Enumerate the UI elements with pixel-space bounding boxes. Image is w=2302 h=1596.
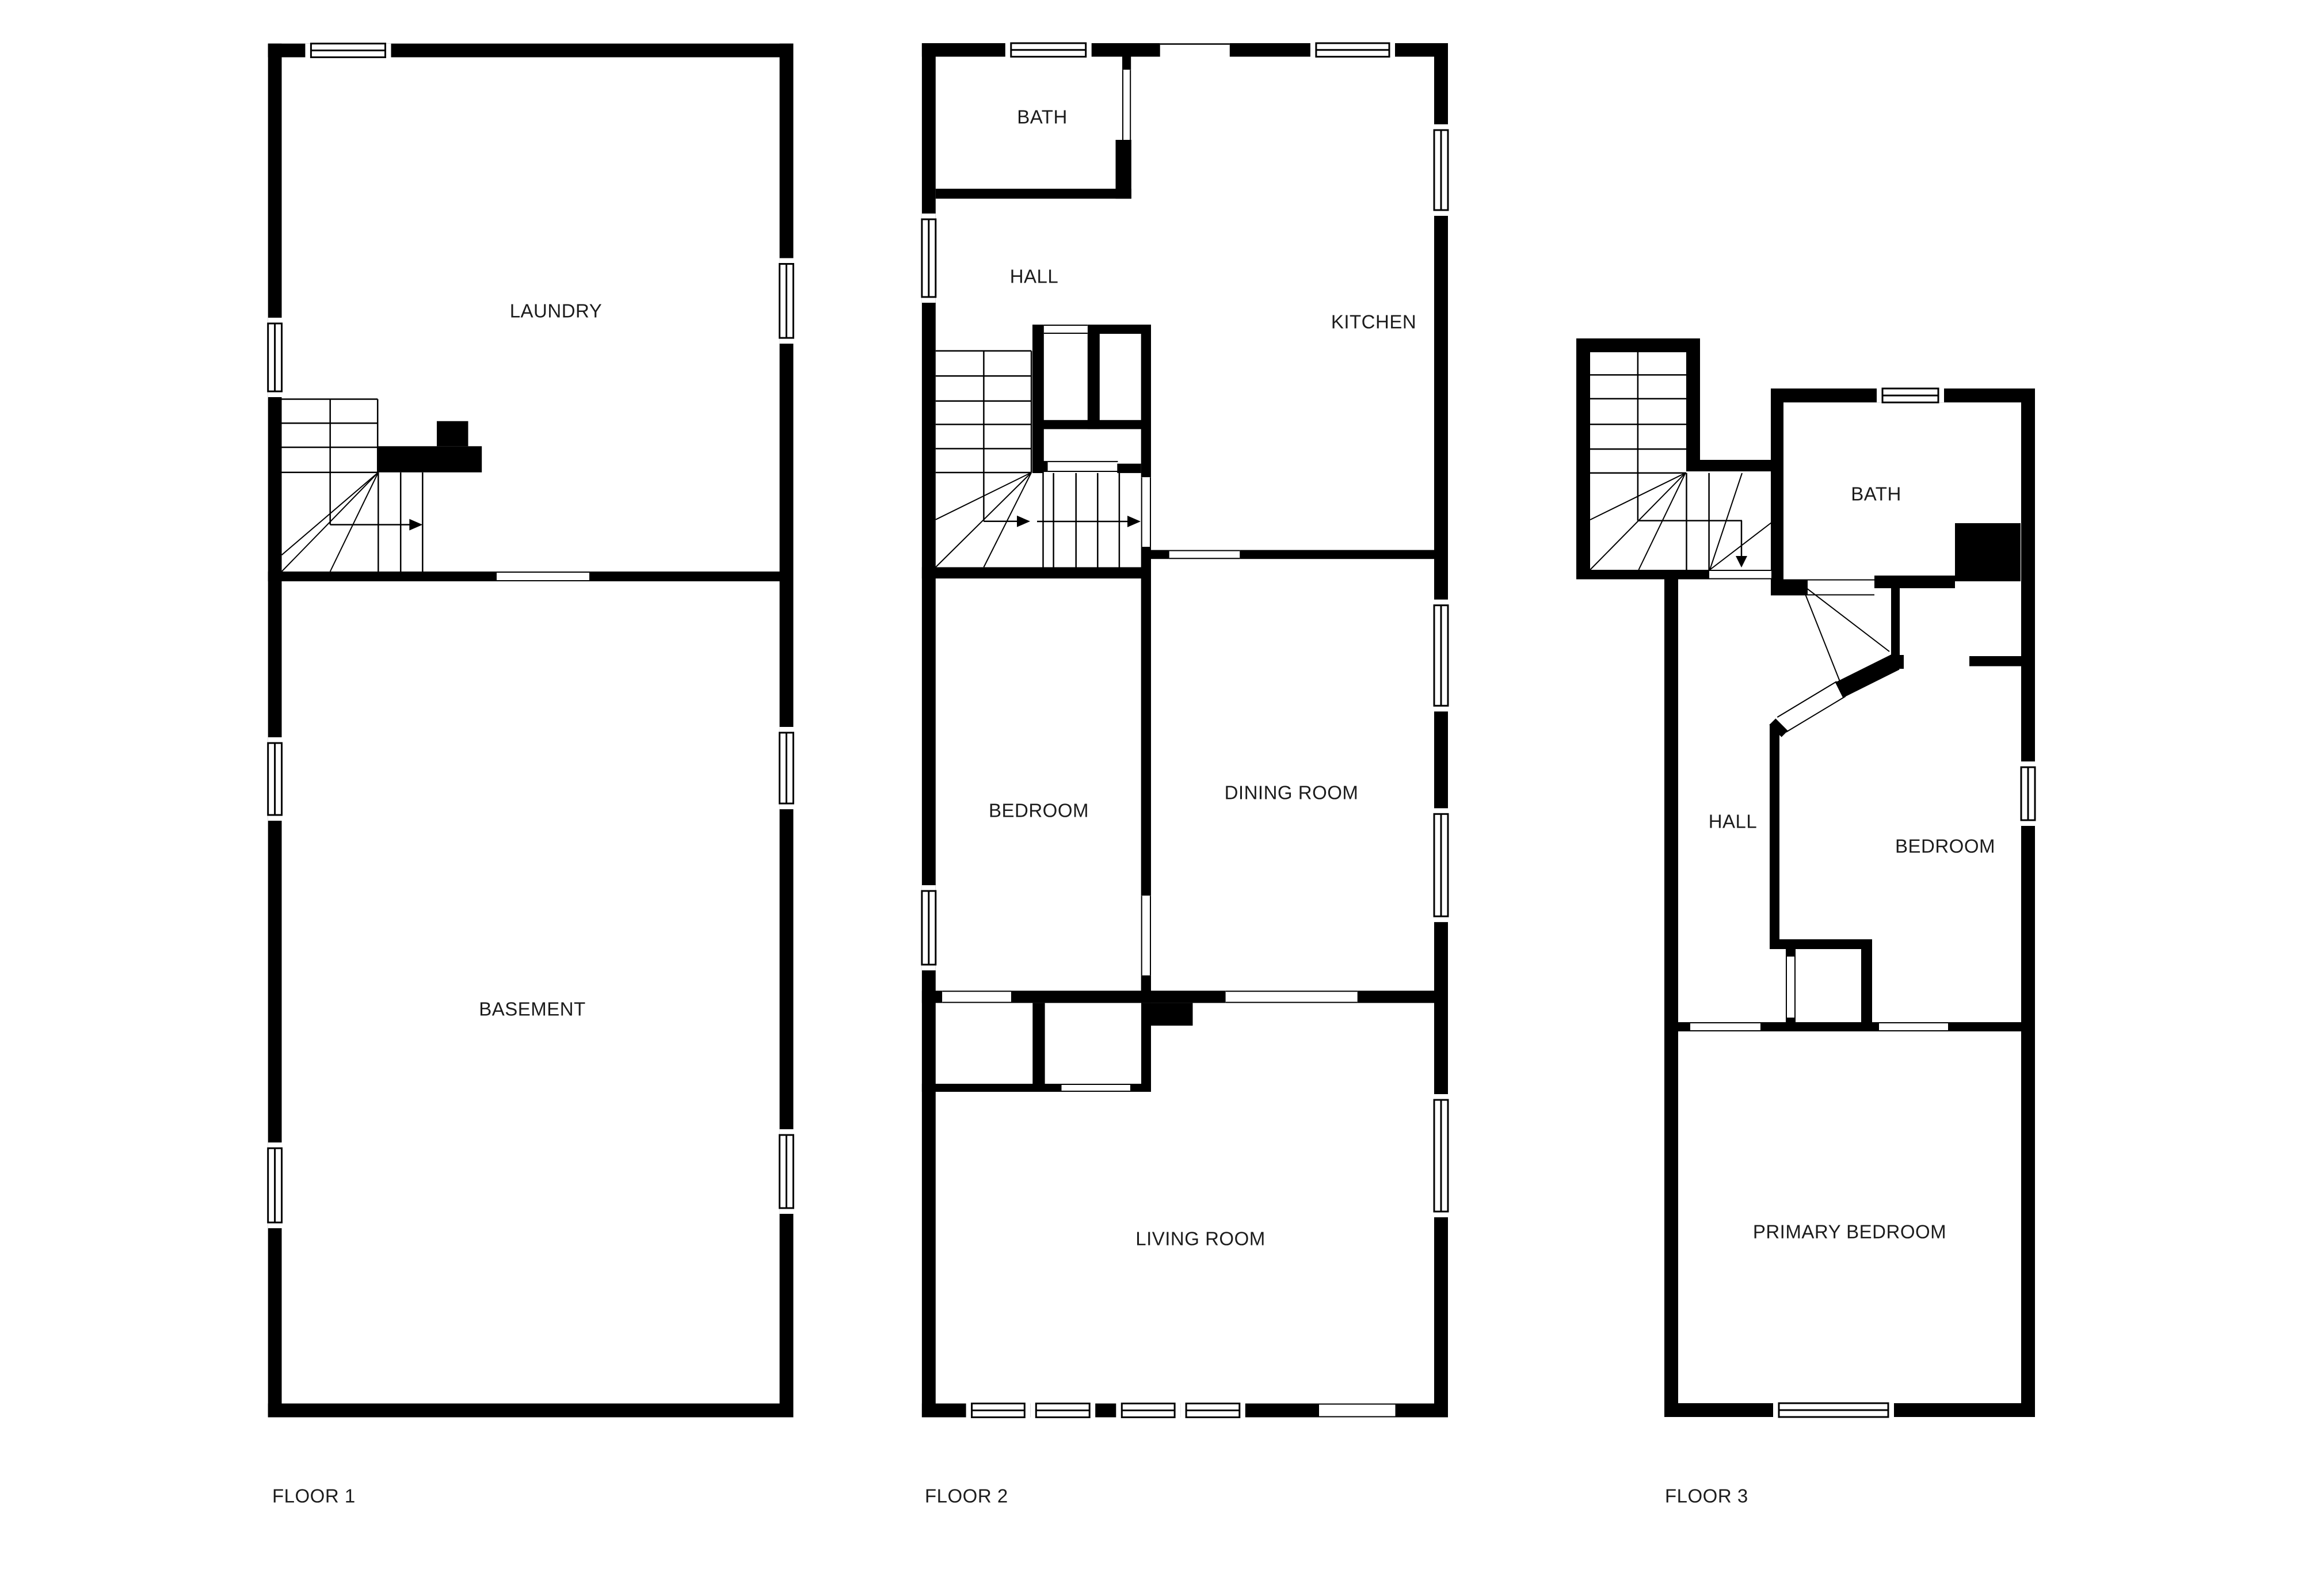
svg-text:KITCHEN: KITCHEN <box>1331 311 1416 333</box>
svg-text:HALL: HALL <box>1709 811 1758 832</box>
svg-text:DINING ROOM: DINING ROOM <box>1225 782 1359 803</box>
svg-text:BATH: BATH <box>1017 106 1068 128</box>
svg-text:LIVING ROOM: LIVING ROOM <box>1135 1228 1266 1250</box>
svg-text:BEDROOM: BEDROOM <box>1895 836 1995 857</box>
svg-text:FLOOR 1: FLOOR 1 <box>272 1485 356 1507</box>
svg-text:BATH: BATH <box>1851 483 1901 505</box>
svg-text:FLOOR 2: FLOOR 2 <box>925 1485 1008 1507</box>
svg-text:FLOOR 3: FLOOR 3 <box>1665 1485 1748 1507</box>
svg-text:HALL: HALL <box>1010 266 1059 287</box>
svg-text:PRIMARY BEDROOM: PRIMARY BEDROOM <box>1753 1221 1946 1243</box>
svg-text:BEDROOM: BEDROOM <box>989 800 1089 821</box>
svg-text:BASEMENT: BASEMENT <box>479 999 586 1020</box>
svg-text:LAUNDRY: LAUNDRY <box>510 300 603 322</box>
